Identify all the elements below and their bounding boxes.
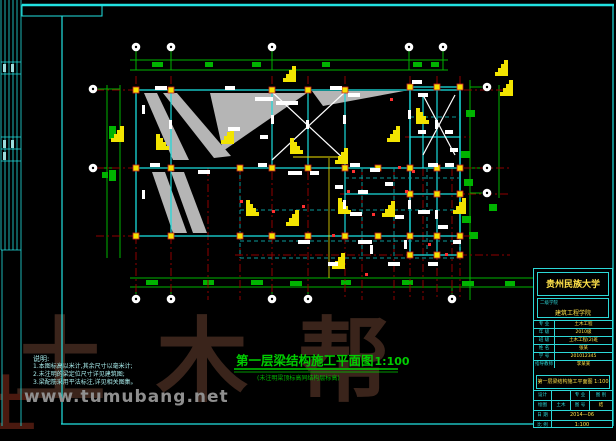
grid-cell: 结 [590, 401, 612, 410]
grid-cell: 图 别 [590, 391, 612, 400]
row-value: 张某 [555, 345, 612, 352]
grid-row: 设计 专 业 图 别 [534, 390, 612, 400]
grid-cell: 设计 [534, 391, 552, 400]
grid-row-date: 日 期 2014—06 [534, 410, 612, 420]
title-block-row: 姓 名张某 [534, 344, 612, 352]
cad-screenshot: { "colors": { "background": "#000000", "… [0, 0, 616, 426]
row-label: 学 号 [534, 353, 555, 360]
notes-block: 说明: 1.本图标高以米计,其余尺寸以毫米计; 2.未注明的梁定位尺寸详见建筑图… [33, 355, 137, 387]
grid-cell: 土木 [552, 401, 571, 410]
grid-cell: 图 号 [571, 401, 590, 410]
grid-row-scale: 比 例 1:100 [534, 420, 612, 428]
grid-cell: 绘图 [534, 401, 552, 410]
title-block-row: 专 业土木工程 [534, 320, 612, 328]
drawing-title: 第一层梁结构施工平面图1:100 [236, 350, 410, 369]
drawing-title-text: 第一层梁结构施工平面图 [236, 353, 374, 368]
date-label: 日 期 [534, 411, 552, 420]
watermark-site-url: www.tumubang.net [24, 387, 229, 407]
title-block-grid: 设计 专 业 图 别 绘图 土木 图 号 结 日 期 2014—06 比 例 1… [534, 390, 612, 428]
row-value: 李某某 [555, 361, 612, 368]
row-label: 专 业 [534, 321, 555, 328]
title-block-row: 班 级土木工程(2)班 [534, 336, 612, 344]
row-value: 2010级 [555, 329, 612, 336]
college-value: 建筑工程学院 [538, 308, 608, 317]
grid-cell: 专 业 [571, 391, 590, 400]
note-line: 2.未注明的梁定位尺寸详见建筑图; [33, 371, 137, 379]
title-block-row: 指导教师李某某 [534, 360, 612, 368]
row-label: 班 级 [534, 337, 555, 344]
grid-cell [552, 391, 571, 400]
college-label: 二级学院 [540, 300, 558, 306]
title-block-rows: 专 业土木工程 年 级2010级 班 级土木工程(2)班 姓 名张某 学 号20… [534, 320, 612, 368]
row-value: 201012345 [555, 353, 612, 360]
grid-row: 绘图 土木 图 号 结 [534, 400, 612, 410]
drawing-title-subtitle: (未注明梁顶标高同结构层标高) [257, 373, 340, 382]
title-block-university: 贵州民族大学 [537, 272, 609, 296]
scale-value: 1:100 [552, 421, 612, 428]
row-label: 年 级 [534, 329, 555, 336]
scale-label: 比 例 [534, 421, 552, 428]
note-line: 3.梁配筋采用平法标注,详见相关图集。 [33, 379, 137, 387]
title-block: 贵州民族大学 二级学院 建筑工程学院 专 业土木工程 年 级2010级 班 级土… [533, 268, 613, 428]
drawing-title-scale: 1:100 [375, 355, 410, 368]
row-value: 土木工程(2)班 [555, 337, 612, 344]
title-block-college-cell: 二级学院 建筑工程学院 [537, 298, 609, 318]
row-label: 指导教师 [534, 361, 555, 368]
row-label: 姓 名 [534, 345, 555, 352]
date-value: 2014—06 [552, 411, 612, 420]
title-block-row: 学 号201012345 [534, 352, 612, 360]
title-block-row: 年 级2010级 [534, 328, 612, 336]
title-block-drawing-title: 第一层梁结构施工平面图 1:100 [536, 375, 610, 389]
notes-header: 说明: [33, 355, 137, 363]
row-value: 土木工程 [555, 321, 612, 328]
note-line: 1.本图标高以米计,其余尺寸以毫米计; [33, 363, 137, 371]
